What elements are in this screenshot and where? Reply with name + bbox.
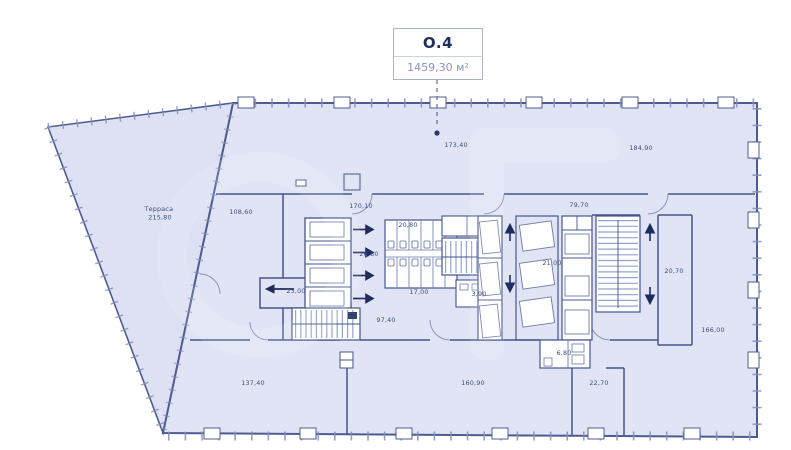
area-label-entrance: 23,00 — [286, 287, 305, 295]
area-label-open-bottom-left: 137,40 — [241, 379, 265, 387]
leader-dot — [434, 130, 439, 135]
area-label-corridor-bottom: 22,70 — [589, 379, 608, 387]
area-label-wc-top: 20,80 — [398, 221, 417, 229]
unit-badge[interactable]: O.4 1459,30 м² — [393, 28, 483, 80]
area-label-open-top-left: 173,40 — [444, 141, 468, 149]
area-label-closet: 3,90 — [471, 290, 486, 298]
elevator-bank-center — [478, 216, 502, 340]
elevator-bank-left — [305, 218, 351, 310]
area-label-wc-small: 6,80 — [556, 349, 571, 357]
stair-right — [596, 216, 640, 312]
area-label-corridor-core: 97,40 — [376, 316, 395, 324]
area-label-shaft-mid: 21,00 — [542, 259, 561, 267]
area-label-elevator-lobby: 26,80 — [359, 250, 378, 258]
unit-code: O.4 — [394, 29, 482, 57]
stair-left — [292, 308, 360, 340]
elevator-bank-right — [562, 216, 592, 340]
area-label-open-bottom: 160,90 — [461, 379, 485, 387]
area-label-corridor-top: 170,10 — [349, 202, 373, 210]
area-label-room-right: 20,70 — [664, 267, 683, 275]
floor-plan-page: Терраса 215,80 173,40 184,90 108,60 170,… — [0, 0, 791, 450]
area-label-corridor-right: 79,70 — [569, 201, 588, 209]
area-label-wc-bottom: 17,00 — [409, 288, 428, 296]
terrace-label: Терраса 215,80 — [144, 205, 176, 222]
unit-area: 1459,30 м² — [394, 57, 482, 79]
shaft-room — [516, 216, 558, 340]
area-label-open-top-right: 184,90 — [629, 144, 653, 152]
area-label-open-right: 166,00 — [701, 326, 725, 334]
area-label-left-zone: 108,60 — [229, 208, 253, 216]
